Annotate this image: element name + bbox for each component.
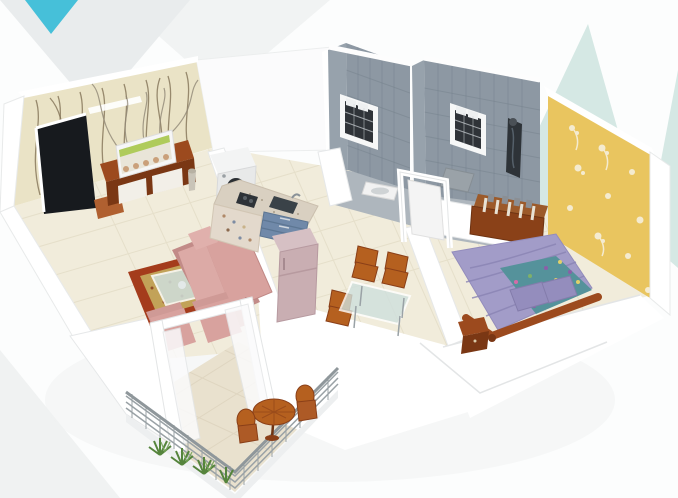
stove-burner (249, 199, 253, 203)
table-knob (474, 340, 477, 343)
table-base (265, 435, 279, 441)
bed-post (488, 334, 496, 342)
door-panel (408, 180, 444, 240)
shower-head (509, 118, 517, 126)
apartment-3d-view (0, 0, 678, 498)
floor-plan-3d-render (0, 0, 678, 498)
fridge-front (277, 244, 318, 322)
decor-vase (188, 169, 196, 192)
stove-burner (243, 196, 247, 200)
shower-unit (506, 118, 522, 178)
table-centerpiece (178, 281, 186, 289)
entrance-door (36, 114, 96, 214)
shower-panel (506, 118, 522, 178)
refrigerator (272, 228, 318, 322)
washing-machine-knob (222, 174, 226, 178)
kitchen-back-wall (196, 47, 336, 152)
bedroom-outer-band (650, 152, 670, 315)
